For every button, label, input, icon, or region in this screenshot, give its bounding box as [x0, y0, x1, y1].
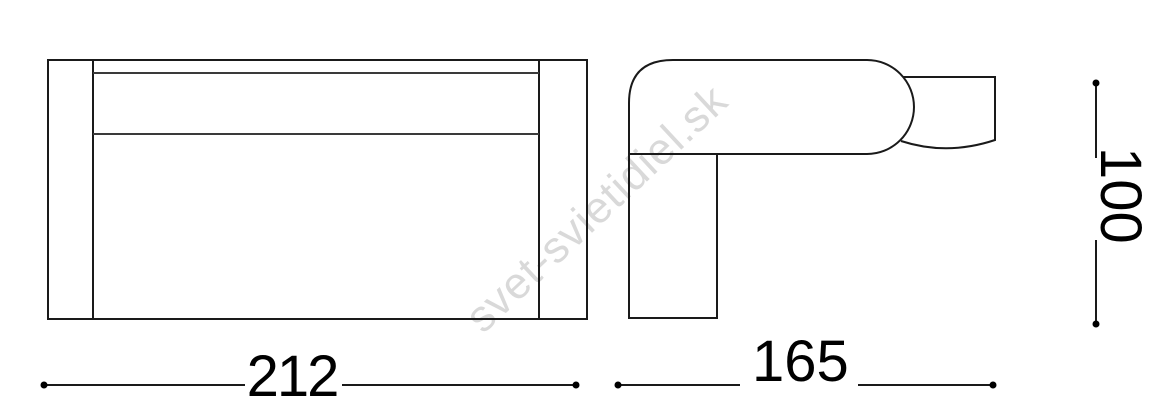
dimension-dot: [1093, 321, 1100, 328]
dimension-dot: [615, 382, 622, 389]
width-dimension-value: 212: [244, 348, 340, 406]
side-view-wall-bracket: [901, 77, 995, 148]
front-view-outline: [48, 60, 587, 319]
side-view-arm: [629, 154, 717, 318]
dimension-dot: [41, 382, 48, 389]
side-view-drawing: [629, 60, 995, 318]
depth-dimension-value: 165: [752, 333, 848, 391]
dimension-drawing-canvas: svet-svietidiel.sk: [0, 0, 1171, 414]
dimension-dot: [573, 382, 580, 389]
height-dimension-value: 100: [1091, 147, 1149, 243]
side-view-lamp-head: [629, 60, 914, 154]
dimension-dot: [990, 382, 997, 389]
dimension-dot: [1093, 80, 1100, 87]
technical-drawing: [0, 0, 1171, 414]
front-view-drawing: [48, 60, 587, 319]
